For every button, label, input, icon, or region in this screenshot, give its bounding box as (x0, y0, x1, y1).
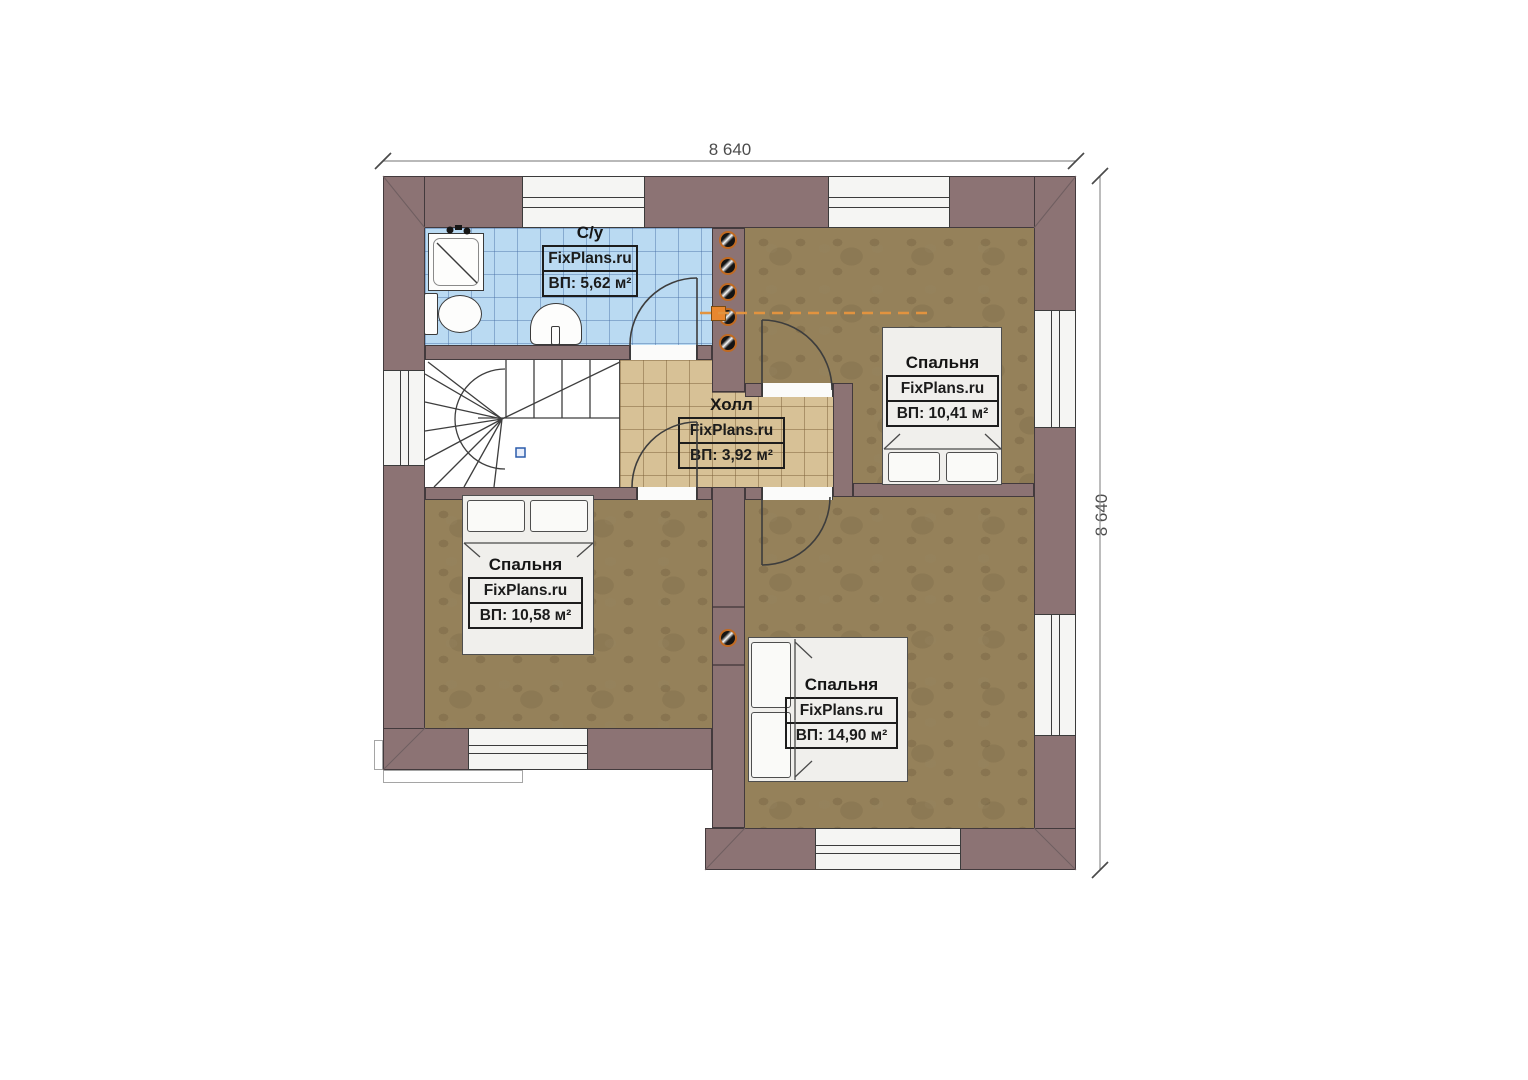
wall-between-right-bedrooms (853, 483, 1034, 497)
wall-exterior-right (1034, 176, 1076, 870)
wall-bathroom-south-stub (697, 345, 712, 360)
floor-plan: С/у FixPlans.ru ВП: 5,62 м² Холл FixPlan… (0, 0, 1528, 1080)
room-name: Спальня (785, 676, 898, 695)
brand-box: FixPlans.ru (542, 245, 638, 272)
area-box: ВП: 10,58 м² (468, 602, 583, 629)
window-right-bedroom-top (1034, 310, 1076, 428)
room-label-hall: Холл FixPlans.ru ВП: 3,92 м² (678, 396, 785, 469)
flue-vent-icon (719, 257, 737, 275)
area-box: ВП: 10,41 м² (886, 400, 999, 427)
brand-box: FixPlans.ru (678, 417, 785, 444)
sink-faucet (551, 326, 560, 345)
window-top-bathroom (522, 176, 645, 228)
window-bottom-right-bedroom (815, 828, 961, 870)
area-box: ВП: 3,92 м² (678, 442, 785, 469)
wall-hall-east (833, 383, 853, 497)
flue-vent-icon (719, 629, 737, 647)
wall-hall-south-stub (697, 487, 712, 500)
eaves-edge (383, 770, 523, 783)
shower-tray-inner (433, 238, 479, 286)
pillow (946, 452, 998, 482)
door-opening-bedroom-top-right (762, 383, 833, 397)
window-bottom-left-bedroom (468, 728, 588, 770)
window-top-bedroom (828, 176, 950, 228)
dimension-top-label: 8 640 (690, 140, 770, 160)
wall-hall-south-east-stub (745, 487, 762, 500)
room-label-bedroom-bottom-right: Спальня FixPlans.ru ВП: 14,90 м² (785, 676, 898, 749)
pillow (467, 500, 525, 532)
wall-exterior-left (383, 176, 425, 770)
stairwell-floor (425, 360, 620, 487)
wall-bathroom-south (425, 345, 630, 360)
wall-between-bottom-bedrooms (712, 487, 745, 828)
flue-vent-icon (719, 334, 737, 352)
pillow (888, 452, 940, 482)
dimension-right-label: 8 640 (1092, 475, 1112, 555)
room-label-bathroom: С/у FixPlans.ru ВП: 5,62 м² (542, 224, 638, 297)
room-label-bedroom-bottom-left: Спальня FixPlans.ru ВП: 10,58 м² (468, 556, 583, 629)
toilet-tank (424, 293, 438, 335)
duct-marker-icon (711, 306, 726, 321)
area-box: ВП: 14,90 м² (785, 722, 898, 749)
room-name: Спальня (468, 556, 583, 575)
door-opening-bedroom-bottom-left (637, 487, 697, 500)
brand-box: FixPlans.ru (468, 577, 583, 604)
room-name: С/у (542, 224, 638, 243)
window-left-stairwell (383, 370, 425, 466)
brand-box: FixPlans.ru (886, 375, 999, 402)
wall-exterior-top (383, 176, 1076, 228)
brand-box: FixPlans.ru (785, 697, 898, 724)
door-opening-bedroom-bottom-right (762, 487, 833, 500)
shower-tray (428, 233, 484, 291)
eaves-edge-left (374, 740, 383, 770)
pillow (530, 500, 588, 532)
window-right-bedroom-bottom (1034, 614, 1076, 736)
flue-vent-icon (719, 231, 737, 249)
area-box: ВП: 5,62 м² (542, 270, 638, 297)
door-opening-bathroom (630, 345, 697, 360)
room-label-bedroom-top-right: Спальня FixPlans.ru ВП: 10,41 м² (886, 354, 999, 427)
toilet-bowl (438, 295, 482, 333)
room-name: Холл (678, 396, 785, 415)
room-name: Спальня (886, 354, 999, 373)
flue-vent-icon (719, 283, 737, 301)
